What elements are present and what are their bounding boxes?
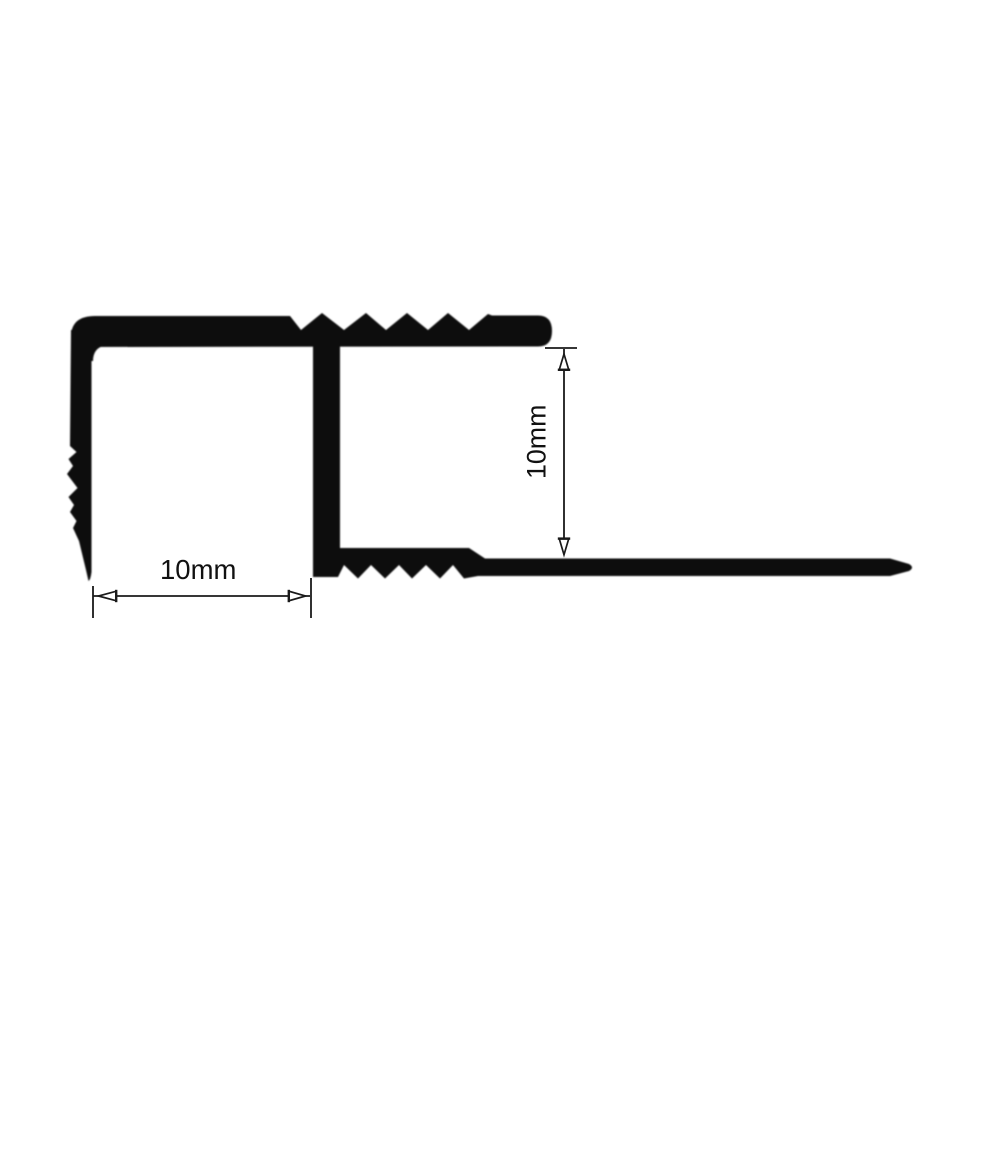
svg-text:10mm: 10mm	[522, 405, 552, 479]
svg-text:10mm: 10mm	[160, 554, 236, 585]
